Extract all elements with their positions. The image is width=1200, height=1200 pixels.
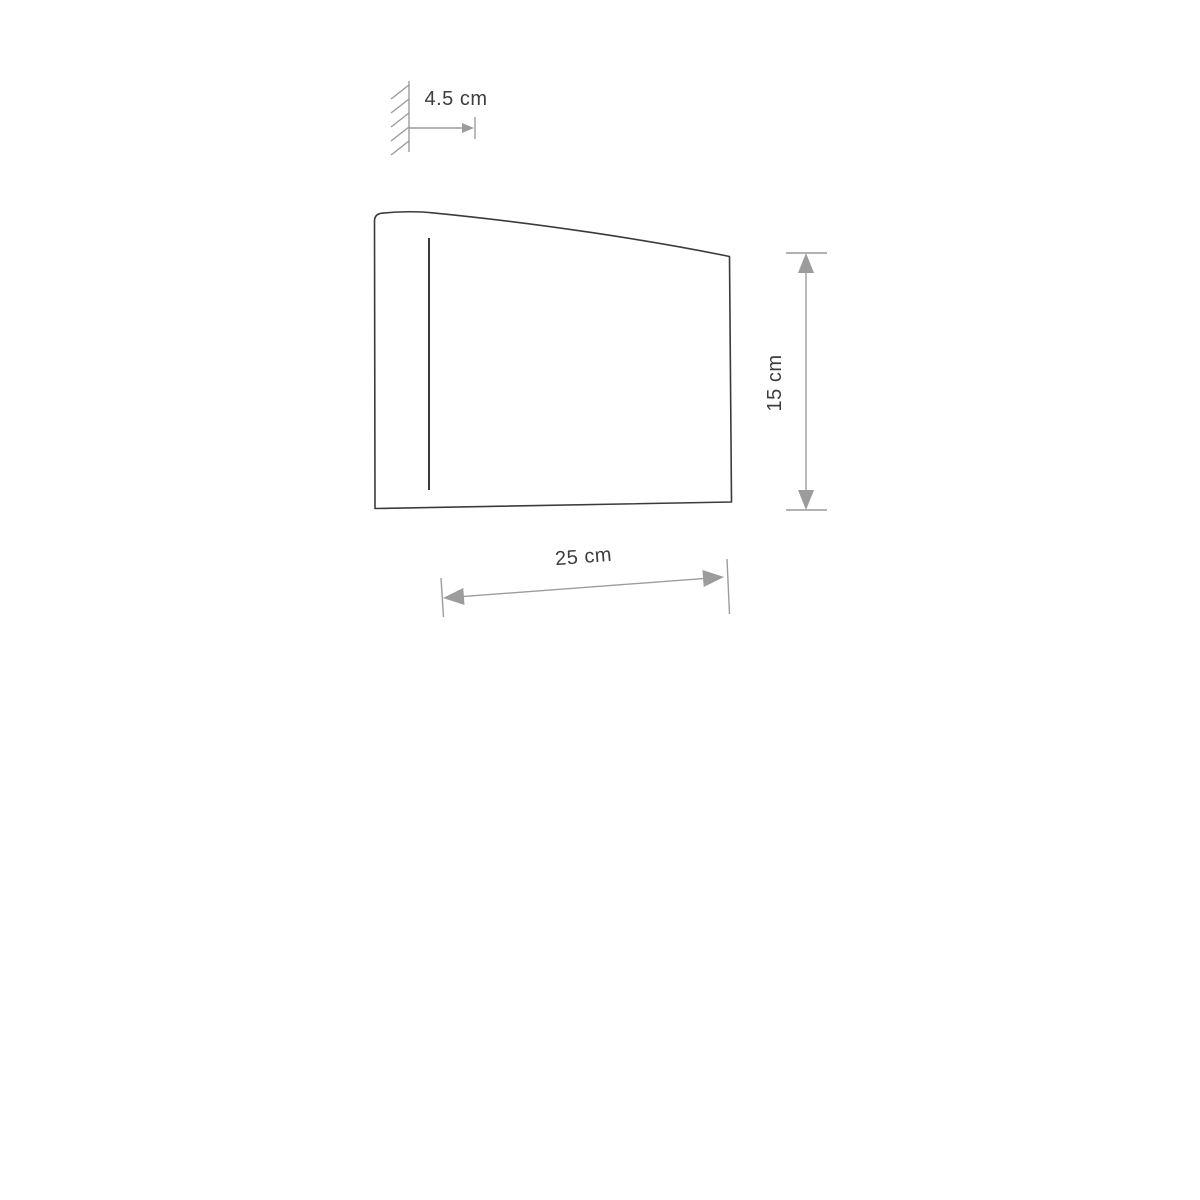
wall-mount-symbol (391, 81, 409, 155)
dimension-drawing-canvas: 4.5 cm 15 cm 25 cm (0, 0, 1200, 1200)
depth-dimension-label: 4.5 cm (424, 88, 487, 110)
height-arrowhead-down-icon (798, 490, 814, 510)
width-dimension-left-cap (441, 578, 444, 617)
height-arrowhead-up-icon (798, 253, 814, 273)
width-arrowhead-right-icon (703, 570, 725, 587)
wall-hatch-line (391, 85, 409, 99)
width-dimension-right-cap (727, 559, 730, 614)
width-dimension-line (447, 577, 720, 597)
wall-hatch-line (391, 141, 409, 155)
wall-hatch-line (391, 99, 409, 113)
width-arrowhead-left-icon (443, 588, 465, 605)
lamp-dimension-diagram: 4.5 cm 15 cm 25 cm (0, 0, 1200, 1200)
depth-arrowhead-right-icon (462, 123, 474, 133)
wall-hatch-line (391, 113, 409, 127)
depth-dimension-arrow (409, 117, 475, 139)
height-dimension-arrow (786, 253, 827, 510)
width-dimension-label: 25 cm (554, 544, 613, 570)
height-dimension-label: 15 cm (764, 355, 786, 412)
wall-hatch-line (391, 127, 409, 141)
